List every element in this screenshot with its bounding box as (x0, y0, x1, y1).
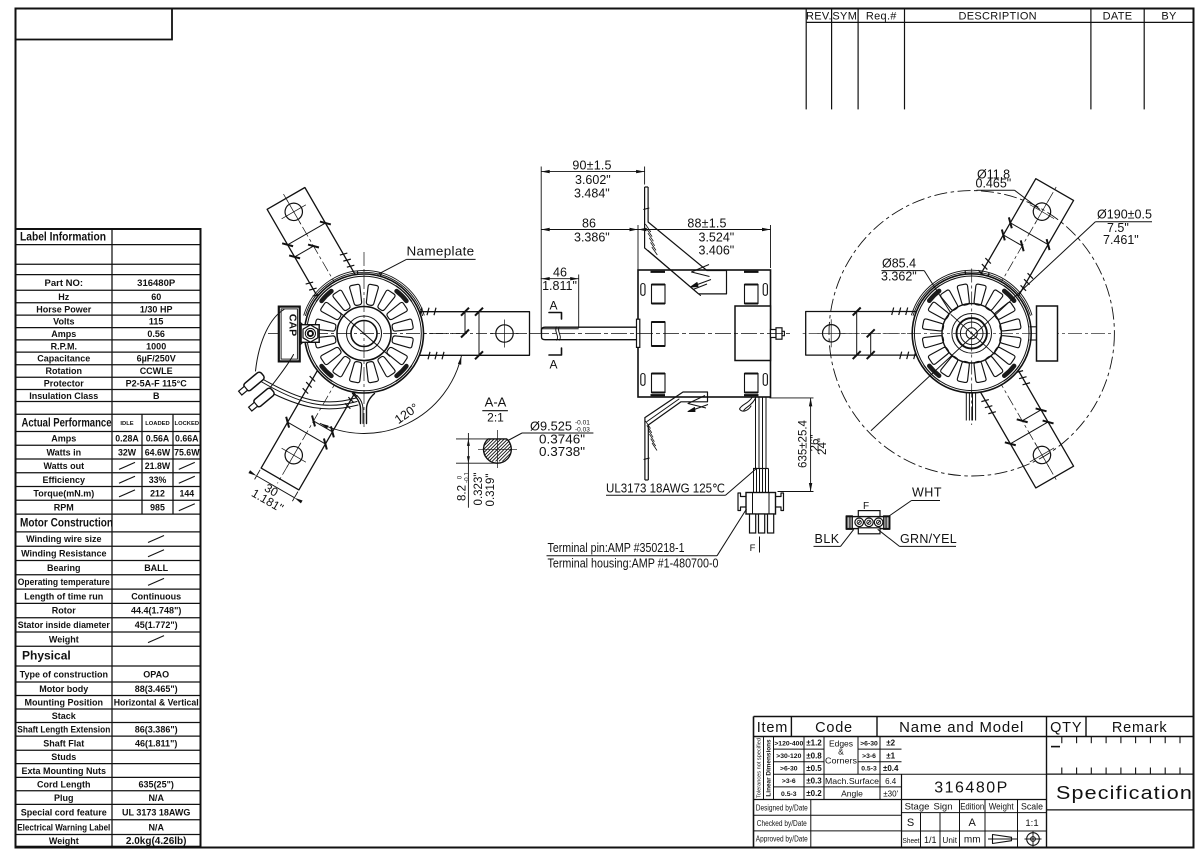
svg-text:1000: 1000 (146, 341, 166, 351)
svg-text:Capacitance: Capacitance (37, 354, 90, 364)
svg-text:2.0kg(4.26lb): 2.0kg(4.26lb) (126, 836, 187, 847)
svg-text:6µF/250V: 6µF/250V (137, 354, 176, 364)
svg-text:Length of time run: Length of time run (24, 591, 103, 601)
svg-text:46: 46 (553, 266, 567, 280)
svg-text:0.5-3: 0.5-3 (861, 766, 877, 773)
svg-text:RPM: RPM (54, 502, 74, 512)
svg-text:115: 115 (149, 317, 164, 327)
svg-text:Sheet: Sheet (903, 836, 920, 845)
svg-text:60: 60 (151, 292, 161, 302)
svg-text:Horizontal & Vertical: Horizontal & Vertical (114, 698, 199, 708)
svg-text:-0.1: -0.1 (463, 472, 470, 483)
svg-text:Hz: Hz (58, 292, 69, 302)
svg-text:Req.#: Req.# (866, 11, 897, 23)
svg-text:SYM: SYM (832, 11, 857, 23)
svg-text:1/30 HP: 1/30 HP (140, 304, 173, 314)
svg-text:±1.2: ±1.2 (806, 739, 822, 748)
svg-text:Nameplate: Nameplate (407, 244, 475, 258)
svg-text:Ø9.525: Ø9.525 (530, 420, 572, 434)
svg-text:44.4(1.748"): 44.4(1.748") (131, 606, 181, 616)
svg-text:45(1.772"): 45(1.772") (135, 620, 178, 630)
svg-text:Shaft Length Extension: Shaft Length Extension (17, 725, 110, 735)
svg-text:Stage: Stage (905, 801, 930, 812)
svg-text:Watts out: Watts out (43, 461, 84, 471)
svg-text:8.2: 8.2 (457, 485, 469, 501)
svg-text:Amps: Amps (51, 329, 76, 339)
svg-text:A-A: A-A (485, 395, 507, 410)
svg-text:Ø190±0.5: Ø190±0.5 (1097, 208, 1152, 222)
svg-text:BY: BY (1161, 11, 1177, 23)
svg-text:Torque(mN.m): Torque(mN.m) (33, 489, 94, 499)
svg-text:635(25"): 635(25") (139, 779, 174, 789)
svg-text:3.406": 3.406" (699, 244, 735, 258)
svg-text:Winding Resistance: Winding Resistance (21, 549, 106, 559)
svg-text:Weight: Weight (49, 836, 79, 846)
svg-text:7.461": 7.461" (1103, 233, 1139, 247)
svg-text:3.602": 3.602" (575, 173, 611, 187)
svg-text:88(3.465"): 88(3.465") (135, 684, 178, 694)
svg-text:Scale: Scale (1021, 801, 1043, 811)
svg-text:A: A (549, 299, 557, 313)
svg-text:Ø85.4: Ø85.4 (882, 257, 916, 271)
svg-text:86(3.386"): 86(3.386") (135, 725, 178, 735)
svg-text:S: S (907, 817, 914, 829)
svg-text:QTY: QTY (1050, 720, 1082, 736)
svg-text:P2-5A-F 115°C: P2-5A-F 115°C (126, 379, 188, 389)
svg-text:Shaft Flat: Shaft Flat (43, 739, 84, 749)
svg-text:Unit: Unit (942, 836, 957, 845)
svg-text:Rotor: Rotor (52, 606, 76, 616)
svg-text:Bearing: Bearing (47, 563, 81, 573)
svg-text:>6-30: >6-30 (860, 740, 878, 747)
svg-text:Continuous: Continuous (131, 591, 181, 601)
svg-text:F: F (750, 543, 756, 554)
svg-text:R.P.M.: R.P.M. (51, 341, 77, 351)
svg-text:>6-30: >6-30 (780, 766, 798, 773)
svg-text:Mach.Surface: Mach.Surface (825, 776, 879, 786)
svg-text:±0.5: ±0.5 (806, 764, 822, 773)
svg-text:Stack: Stack (52, 711, 77, 721)
svg-text:Stator inside diameter: Stator inside diameter (18, 620, 110, 630)
svg-text:Insulation Class: Insulation Class (29, 391, 98, 401)
svg-text:Linear Dimensions: Linear Dimensions (766, 739, 773, 797)
svg-text:±2: ±2 (886, 739, 895, 748)
svg-text:3.386": 3.386" (574, 231, 610, 245)
svg-text:Horse Power: Horse Power (36, 304, 92, 314)
svg-text:Watts in: Watts in (46, 447, 81, 457)
svg-text:0.56A: 0.56A (146, 434, 170, 444)
svg-text:Terminal housing:AMP #1-480700: Terminal housing:AMP #1-480700-0 (548, 557, 719, 571)
svg-text:32W: 32W (118, 447, 137, 457)
svg-text:64.6W: 64.6W (145, 447, 171, 457)
svg-text:Special cord feature: Special cord feature (21, 807, 107, 817)
svg-text:Name and Model: Name and Model (899, 720, 1024, 736)
svg-text:Tolerances not specified: Tolerances not specified (757, 738, 763, 798)
svg-text:>120-400: >120-400 (774, 740, 803, 747)
svg-text:Checked by/Date: Checked by/Date (757, 818, 807, 828)
svg-text:Sign: Sign (933, 801, 952, 812)
svg-text:±0.8: ±0.8 (806, 751, 822, 760)
svg-text:±30': ±30' (883, 790, 898, 799)
svg-text:46(1.811"): 46(1.811") (135, 739, 177, 749)
svg-text:Operating temperature: Operating temperature (18, 577, 110, 587)
svg-text:Exta Mounting Nuts: Exta Mounting Nuts (22, 766, 107, 776)
svg-text:75.6W: 75.6W (174, 447, 200, 457)
svg-text:Winding wire size: Winding wire size (26, 534, 101, 544)
svg-text:DESCRIPTION: DESCRIPTION (958, 11, 1036, 23)
svg-text:Physical: Physical (22, 649, 71, 663)
svg-text:Angle: Angle (841, 789, 863, 799)
svg-text:>3-6: >3-6 (782, 778, 796, 785)
svg-text:0.56: 0.56 (147, 329, 165, 339)
svg-text:A: A (969, 817, 977, 829)
svg-text:316480P: 316480P (934, 780, 1009, 797)
svg-text:Motor body: Motor body (39, 684, 88, 694)
svg-text:985: 985 (150, 502, 165, 512)
svg-text:1:1: 1:1 (1025, 818, 1038, 829)
svg-text:N/A: N/A (148, 822, 164, 832)
svg-text:24": 24" (817, 438, 829, 455)
svg-text:3.524": 3.524" (699, 231, 735, 245)
svg-text:Item: Item (757, 720, 788, 736)
svg-text:Code: Code (815, 720, 853, 736)
svg-text:REV.: REV. (806, 11, 832, 23)
svg-text:Label Information: Label Information (20, 229, 106, 243)
svg-text:635±25.4: 635±25.4 (798, 419, 810, 467)
svg-text:N/A: N/A (148, 793, 164, 803)
svg-text:21.8W: 21.8W (145, 461, 171, 471)
svg-text:Designed by/Date: Designed by/Date (756, 802, 808, 812)
svg-text:0.465": 0.465" (976, 176, 1012, 190)
svg-text:GRN/YEL: GRN/YEL (900, 532, 957, 546)
svg-text:144: 144 (179, 489, 194, 499)
svg-text:Plug: Plug (54, 793, 74, 803)
svg-text:Efficiency: Efficiency (43, 475, 86, 485)
svg-text:Weight: Weight (989, 801, 1014, 811)
svg-text:3.484": 3.484" (574, 187, 610, 201)
svg-text:316480P: 316480P (137, 278, 176, 289)
svg-text:Terminal pin:AMP #350218-1: Terminal pin:AMP #350218-1 (548, 541, 685, 555)
svg-text:90±1.5: 90±1.5 (572, 159, 611, 173)
svg-text:A: A (549, 358, 557, 372)
svg-text:Specification: Specification (1056, 782, 1193, 803)
svg-text:DATE: DATE (1103, 11, 1133, 23)
svg-text:Motor Construction: Motor Construction (20, 515, 113, 529)
svg-text:Mounting Position: Mounting Position (25, 698, 103, 708)
svg-text:LOCKED: LOCKED (175, 421, 199, 427)
svg-text:±0.2: ±0.2 (806, 789, 822, 798)
svg-text:88±1.5: 88±1.5 (687, 216, 726, 230)
svg-text:Actual Performance: Actual Performance (22, 416, 112, 430)
svg-text:Volts: Volts (53, 317, 74, 327)
svg-text:0.5-3: 0.5-3 (781, 791, 797, 798)
svg-text:Rotation: Rotation (46, 366, 83, 376)
svg-text:6.4: 6.4 (885, 777, 897, 786)
svg-text:CCWLE: CCWLE (140, 366, 173, 376)
svg-text:±1: ±1 (886, 751, 895, 760)
svg-text:Corners: Corners (825, 756, 857, 766)
svg-text:UL3173 18AWG 125℃: UL3173 18AWG 125℃ (606, 481, 725, 495)
svg-text:Weight: Weight (49, 634, 79, 644)
svg-text:BLK: BLK (815, 532, 840, 546)
svg-text:Amps: Amps (51, 434, 76, 444)
svg-text:0.3738": 0.3738" (539, 445, 585, 459)
svg-text:LOADED: LOADED (145, 421, 169, 427)
svg-text:1/1: 1/1 (924, 835, 937, 845)
svg-text:Electrical Warning Label: Electrical Warning Label (17, 822, 110, 832)
svg-text:-0.01: -0.01 (575, 420, 590, 427)
svg-text:B: B (153, 391, 160, 401)
svg-text:WHT: WHT (912, 486, 942, 500)
svg-text:Remark: Remark (1112, 720, 1168, 736)
svg-text:BALL: BALL (144, 563, 168, 573)
svg-text:Protector: Protector (44, 379, 85, 389)
svg-text:CAP: CAP (287, 314, 299, 336)
svg-text:>3-6: >3-6 (862, 753, 876, 760)
svg-text:Cord Length: Cord Length (37, 779, 91, 789)
svg-text:mm: mm (964, 835, 981, 846)
svg-text:33%: 33% (149, 475, 167, 485)
svg-text:UL 3173 18AWG: UL 3173 18AWG (122, 807, 190, 817)
svg-text:212: 212 (150, 489, 165, 499)
svg-text:0.323": 0.323" (473, 473, 485, 506)
svg-text:OPAO: OPAO (143, 669, 169, 679)
svg-text:Type of construction: Type of construction (20, 669, 108, 679)
svg-text:0.28A: 0.28A (115, 434, 139, 444)
svg-text:±0.3: ±0.3 (806, 777, 822, 786)
svg-text:1.811": 1.811" (542, 279, 577, 293)
svg-text:Edition: Edition (960, 801, 984, 811)
svg-text:3.362": 3.362" (881, 270, 917, 284)
svg-text:0.319": 0.319" (485, 474, 497, 507)
svg-text:2:1: 2:1 (487, 411, 504, 425)
svg-text:Part NO:: Part NO: (45, 278, 84, 289)
svg-text:0.66A: 0.66A (175, 434, 199, 444)
svg-text:>30-120: >30-120 (776, 753, 801, 760)
svg-text:Studs: Studs (51, 752, 76, 762)
svg-text:Approved by/Date: Approved by/Date (756, 834, 808, 844)
svg-text:IDLE: IDLE (120, 421, 133, 427)
svg-text:±0.4: ±0.4 (883, 764, 899, 773)
svg-text:86: 86 (582, 216, 596, 230)
